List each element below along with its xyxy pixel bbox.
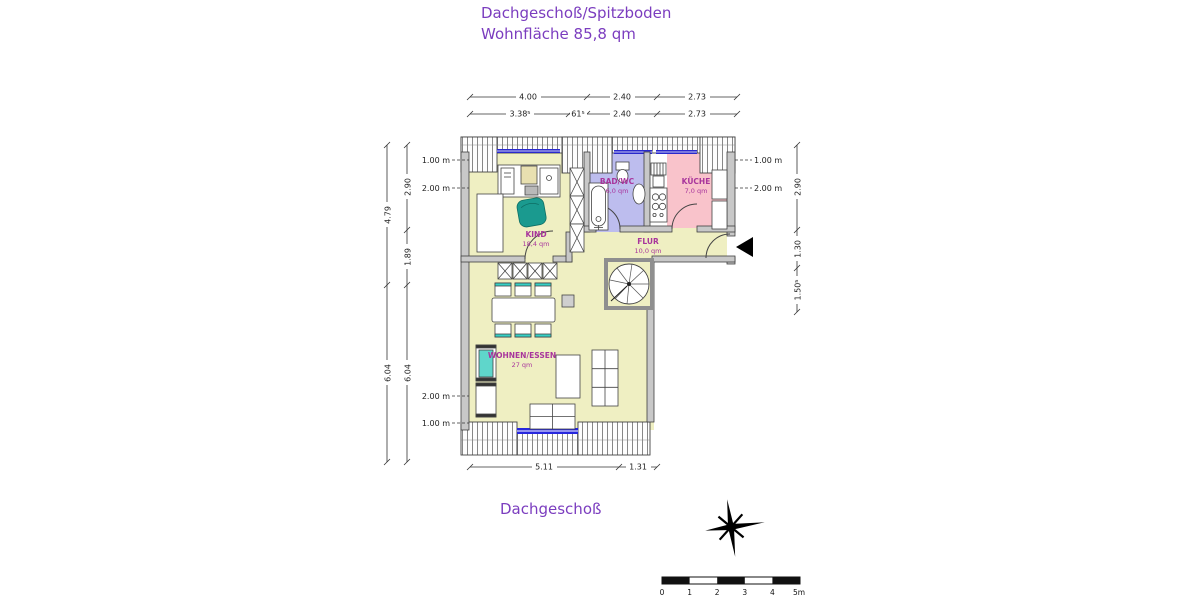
dim-left-inner-1: 1.89 [404, 248, 413, 266]
dim-bottom-1: 1.31 [629, 463, 647, 472]
dining-table [492, 298, 555, 322]
room-area-kueche: 7,0 qm [685, 187, 708, 195]
dim-right-0: 2.90 [794, 178, 803, 196]
bed-right-section [540, 168, 558, 194]
dim-left-outer-1: 6.04 [384, 364, 393, 382]
sink-icon [633, 184, 645, 204]
plan-footer-label: Dachgeschoß [500, 500, 601, 518]
kitchen-counter-box [653, 176, 664, 187]
wall-flur-bottom [652, 256, 735, 262]
dim-right-1: 1.30 [794, 240, 803, 258]
bed-pillow [521, 166, 537, 184]
scale-tick-0: 0 [660, 588, 665, 597]
height-mark-left-1: 1.00 m [422, 156, 450, 165]
dining-chairs-top [495, 283, 551, 296]
dining-chairs-bottom [495, 324, 551, 337]
height-mark-left-3: 2.00 m [422, 392, 450, 401]
height-mark-left-4: 1.00 m [422, 419, 450, 428]
closet-column [570, 168, 584, 252]
sofa-bottom [530, 404, 575, 429]
scale-tick-3: 3 [742, 588, 747, 597]
room-area-bad: 6,0 qm [606, 187, 629, 195]
wall-unit [592, 350, 618, 406]
room-area-kind: 18,4 qm [523, 240, 550, 248]
kitchen-sink-unit [651, 163, 666, 175]
kitchen-counter-right-2 [712, 201, 727, 229]
toilet-tank [616, 162, 629, 170]
dim-top1-2: 2.73 [688, 93, 706, 102]
room-label-kueche: KÜCHE [682, 177, 711, 186]
dim-left-outer-0: 4.79 [384, 206, 393, 224]
dim-top2-0: 3.38⁵ [509, 110, 530, 119]
entrance-arrow-icon [736, 237, 753, 257]
room-area-wohnen: 27 qm [512, 361, 533, 369]
dim-top2-1: 61⁵ [571, 110, 584, 119]
wall-kind-bottom-1 [461, 256, 525, 262]
scale-tick-4: 4 [770, 588, 775, 597]
dim-bottom-0: 5.11 [535, 463, 553, 472]
room-label-kind: KIND [525, 230, 546, 239]
dim-top2-3: 2.73 [688, 110, 706, 119]
scale-tick-5: 5m [793, 588, 805, 597]
scale-tick-2: 2 [715, 588, 720, 597]
compass-rose-icon [701, 495, 768, 561]
wall-left [461, 152, 469, 430]
page-title-line2: Wohnfläche 85,8 qm [481, 25, 636, 43]
room-label-bad: BAD/WC [600, 177, 635, 186]
bathtub-drain [596, 217, 601, 222]
kitchen-counter-right-1 [712, 170, 727, 199]
room-area-flur: 10,0 qm [635, 247, 662, 255]
scale-bar: 0 1 2 3 4 5m [660, 577, 805, 597]
coffee-table [556, 355, 580, 398]
dim-top1-0: 4.00 [519, 93, 537, 102]
dim-left-inner-2: 6.04 [404, 364, 413, 382]
dim-top1-1: 2.40 [613, 93, 631, 102]
dim-right-2: 1.50⁵ [794, 279, 803, 300]
scale-tick-1: 1 [687, 588, 692, 597]
floor-plan-page: Dachgeschoß/Spitzboden Wohnfläche 85,8 q… [0, 0, 1200, 600]
bed-left-section [501, 168, 514, 194]
page-title-line1: Dachgeschoß/Spitzboden [481, 4, 671, 22]
wardrobe [477, 194, 503, 252]
wall-right-upper [727, 152, 735, 236]
height-mark-left-2: 2.00 m [422, 184, 450, 193]
room-label-wohnen: WOHNEN/ESSEN [488, 351, 556, 360]
room-label-flur: FLUR [637, 237, 659, 246]
dim-top2-2: 2.40 [613, 110, 631, 119]
side-table [562, 295, 574, 307]
height-mark-right-1: 1.00 m [754, 156, 782, 165]
dim-left-inner-0: 2.90 [404, 178, 413, 196]
spiral-staircase [606, 260, 652, 308]
floor-plan-drawing: Dachgeschoß/Spitzboden Wohnfläche 85,8 q… [0, 0, 1200, 600]
wall-flur-top-2 [620, 226, 672, 232]
beanbag-chair [516, 197, 547, 228]
height-mark-right-2: 2.00 m [754, 184, 782, 193]
bed-table [525, 186, 538, 195]
